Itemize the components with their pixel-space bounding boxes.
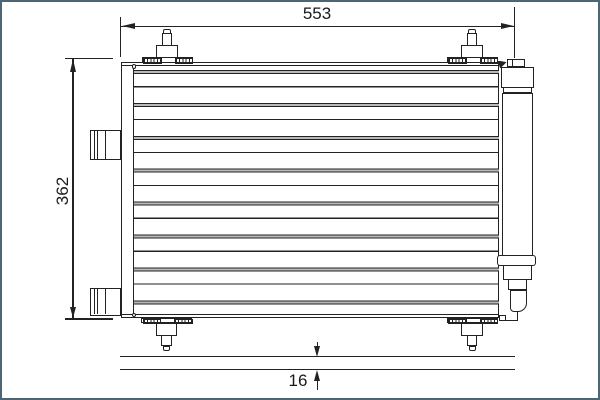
left-bracket-top-rib xyxy=(97,131,98,158)
top-right-pin-pad-hatch xyxy=(480,58,499,64)
bottom-left-pin-block xyxy=(156,323,178,336)
bottom-right-pin-block xyxy=(461,323,483,336)
core-corner-rivet-top xyxy=(132,64,137,69)
width-dimension-line xyxy=(121,26,514,27)
left-bracket-top-rib xyxy=(105,131,106,158)
width-arrow-right-icon xyxy=(501,23,514,29)
drier-bracket-line xyxy=(517,311,518,321)
drier-outlet-nozzle xyxy=(510,290,527,312)
drier-inlet-elbow xyxy=(507,59,526,67)
drier-body xyxy=(502,93,533,256)
top-left-pin-pad-hatch xyxy=(175,58,194,64)
width-extension-line-right xyxy=(514,7,515,58)
width-arrow-left-icon xyxy=(122,23,135,29)
left-bracket-bottom-rib xyxy=(97,289,98,314)
left-bracket-bottom-rib xyxy=(105,289,106,314)
top-left-pin-stud xyxy=(162,33,172,46)
top-left-pin-pad-hatch xyxy=(143,58,162,64)
left-bracket-top-rib xyxy=(94,131,95,158)
top-left-pin-block xyxy=(156,45,178,58)
bottom-right-pin-tip xyxy=(469,346,476,351)
bottom-left-pin-tip xyxy=(163,346,170,351)
dimension-width-label: 553 xyxy=(297,4,337,24)
left-bracket-bottom-rib xyxy=(94,289,95,314)
drier-bottom-collar xyxy=(497,255,536,265)
dimension-depth-label: 16 xyxy=(283,371,313,391)
bottom-left-pin-stud xyxy=(161,335,171,346)
bottom-right-pin-stud xyxy=(467,335,477,346)
dimension-height-label: 362 xyxy=(53,171,73,211)
top-right-pin-stud xyxy=(467,33,477,46)
depth-dimension-stem-bottom xyxy=(317,380,318,391)
drier-top-cap xyxy=(501,67,534,87)
top-right-pin-pad-hatch xyxy=(448,58,467,64)
drier-inlet-elbow-line xyxy=(512,60,513,66)
drier-bottom-step xyxy=(508,279,527,290)
core-bottom-inner-line xyxy=(122,314,498,315)
condenser-technical-drawing: 553 362 xyxy=(0,0,600,400)
core-tube-fin-pattern xyxy=(134,70,499,306)
depth-arrow-down-icon xyxy=(314,346,320,357)
top-right-pin-block xyxy=(461,45,483,58)
height-arrow-up-icon xyxy=(70,59,76,72)
drier-bottom-section xyxy=(503,265,532,279)
core-top-inner-line xyxy=(122,65,498,66)
height-arrow-down-icon xyxy=(70,307,76,318)
